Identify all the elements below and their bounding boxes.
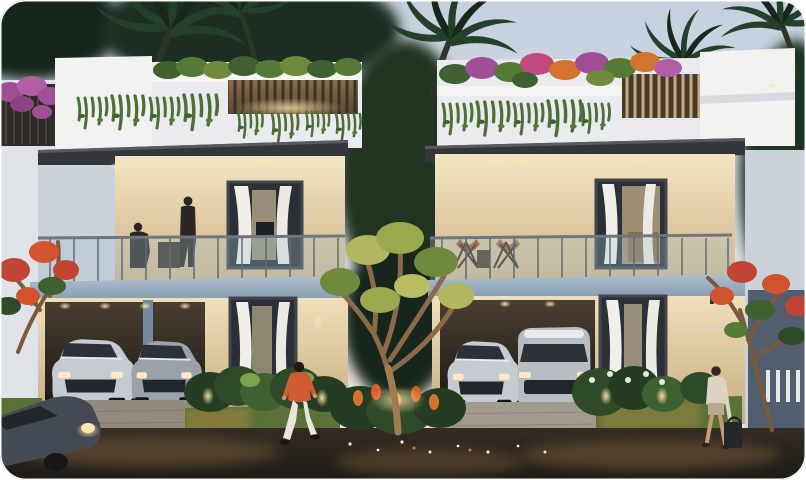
villa-render-image: 005 (0, 0, 806, 480)
glass-railing-upper-left (38, 236, 345, 284)
villa-photo-card: 005 (0, 0, 806, 480)
villa-right-roof-level (437, 48, 795, 148)
briefcase (724, 422, 742, 448)
villa-left-roof-level (55, 56, 362, 150)
